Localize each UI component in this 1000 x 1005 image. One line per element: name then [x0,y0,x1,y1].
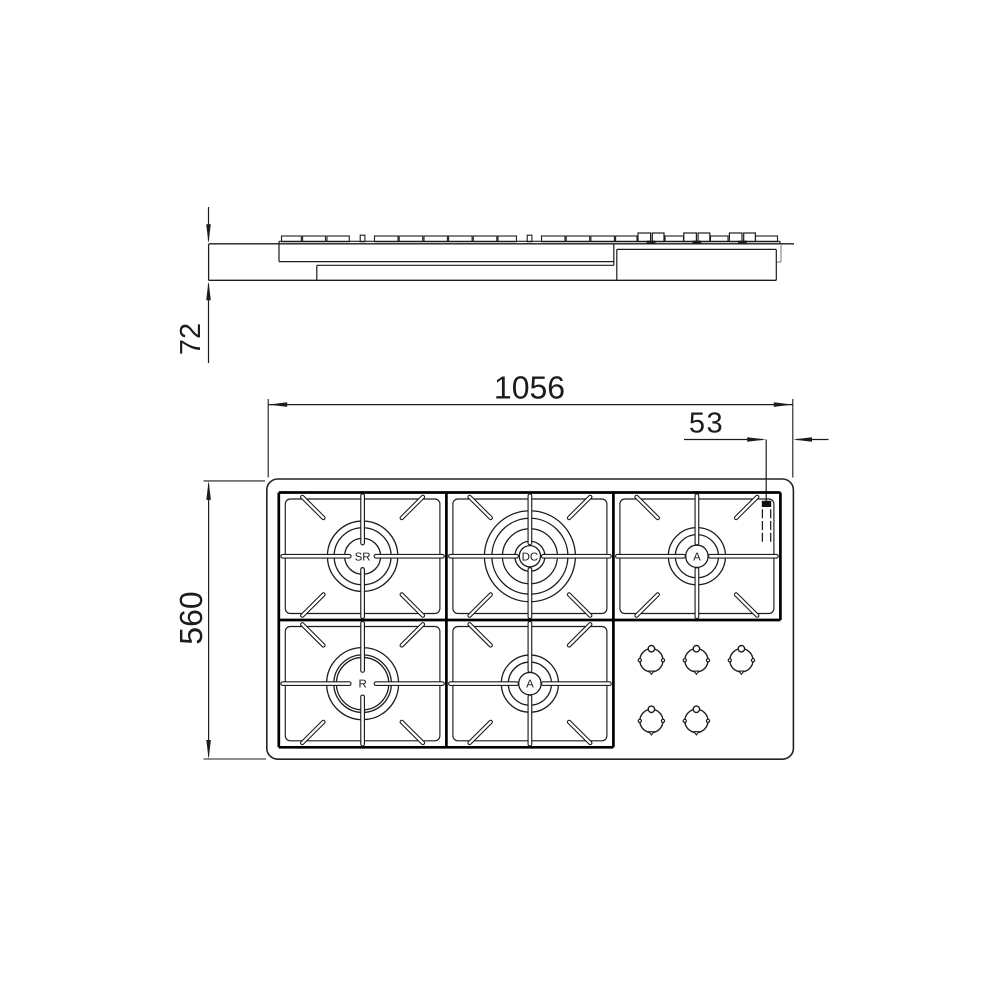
svg-text:560: 560 [173,591,209,644]
svg-text:A: A [526,679,534,691]
svg-text:53: 53 [689,408,724,440]
svg-text:R: R [358,679,366,691]
svg-text:1056: 1056 [494,370,565,406]
svg-text:DC: DC [522,551,539,563]
svg-text:SR: SR [355,551,371,563]
svg-text:72: 72 [175,323,207,355]
svg-text:A: A [693,551,701,563]
